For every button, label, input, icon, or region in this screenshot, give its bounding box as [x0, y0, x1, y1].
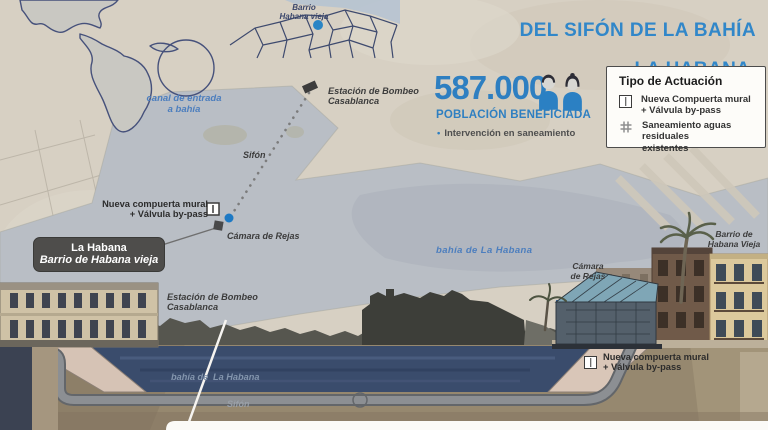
- new-gate-map-label: Nueva compuerta mural + Válvula by-pass: [86, 199, 208, 220]
- old-town-label: Barrio de Habana Vieja: [700, 230, 768, 249]
- hash-grid-icon: [619, 120, 633, 134]
- bay-map-label: bahía de La Habana: [436, 246, 532, 257]
- population-value: 587.000: [434, 70, 546, 107]
- people-icon: [537, 71, 585, 113]
- blue-location-dot: [225, 214, 234, 223]
- bay-section-label-right: La Habana: [213, 372, 259, 382]
- gate-map-icon: [207, 203, 219, 215]
- new-gate-section-label: Nueva compuerta mural + Válvula by-pass: [603, 352, 709, 373]
- siphon-map-label: Sifón: [243, 150, 266, 160]
- gate-marker: [213, 220, 223, 230]
- district-name: Barrio de Habana vieja: [38, 254, 160, 266]
- legend-item-gate: Nueva Compuerta mural + Válvula by-pass: [619, 94, 751, 117]
- bullet-icon: •: [437, 128, 440, 139]
- intervention-note: •Intervención en saneamiento: [437, 129, 575, 140]
- bay-section-label-left: bahía de: [171, 372, 208, 382]
- canal-label: canal de entrada a bahía: [138, 94, 230, 115]
- legend-box: Tipo de Actuación Nueva Compuerta mural …: [606, 66, 766, 148]
- siphon-section-label: Sifón: [227, 399, 250, 409]
- gate-section-icon: [584, 356, 597, 369]
- inset-map-label: Barrio Habana vieja: [258, 4, 350, 22]
- title-line1: DEL SIFÓN DE LA BAHÍA: [420, 20, 756, 41]
- city-label-box: La Habana Barrio de Habana vieja: [33, 237, 165, 272]
- sluice-gate-icon: [619, 95, 632, 108]
- legend-title: Tipo de Actuación: [619, 74, 722, 88]
- city-name: La Habana: [38, 242, 160, 254]
- screens-chamber-map-label: Cámara de Rejas: [227, 231, 300, 241]
- pumping-station-section-label: Estación de Bombeo Casablanca: [167, 292, 258, 313]
- population-caption: POBLACIÓN BENEFICIADA: [436, 109, 591, 122]
- legend-item-existing: Saneamiento aguas residuales existentes: [619, 120, 765, 154]
- bottom-card-edge: [166, 421, 768, 430]
- pumping-station-map-label: Estación de Bombeo Casablanca: [328, 86, 419, 107]
- infographic-havana-siphon: DEL SIFÓN DE LA BAHÍA LA HABANA. CUB003B…: [0, 0, 768, 430]
- screens-chamber-right-label: Cámara de Rejas: [564, 262, 612, 281]
